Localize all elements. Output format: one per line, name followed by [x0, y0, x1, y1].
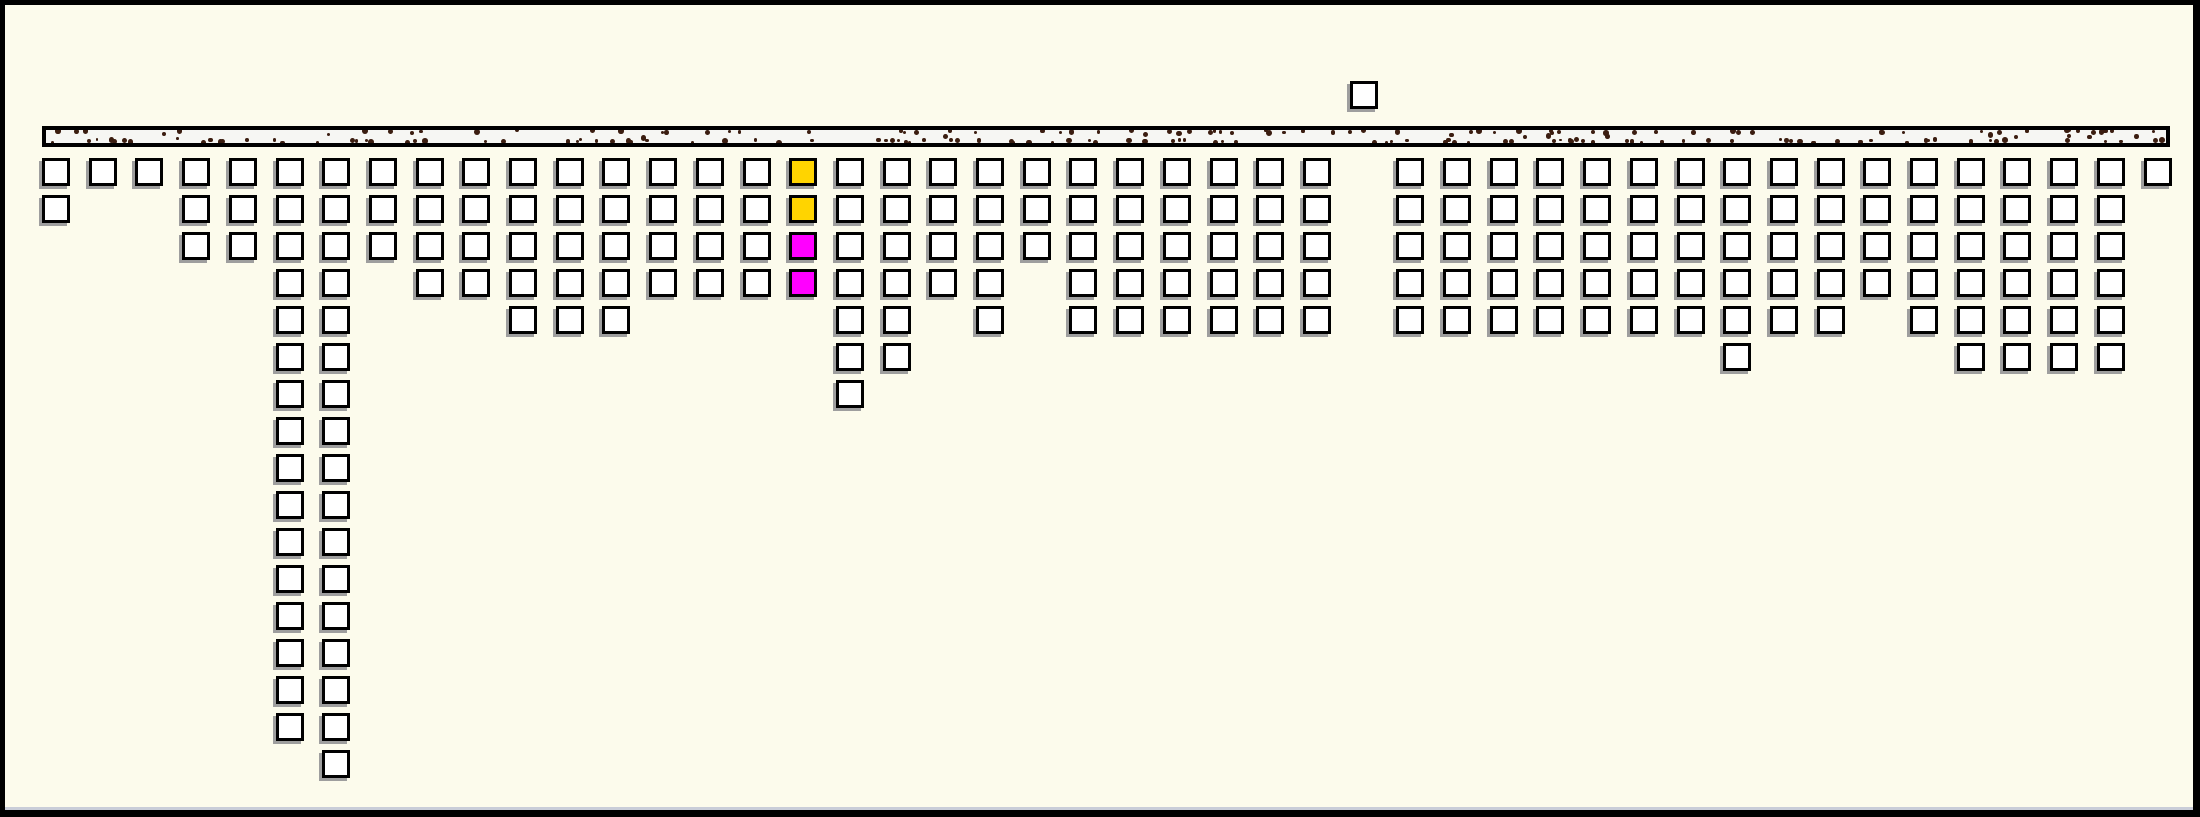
speckle-dot [1176, 131, 1182, 137]
speckle-dot [1143, 140, 1146, 143]
unit-square [556, 232, 584, 260]
unit-square [1583, 232, 1611, 260]
unit-square [322, 528, 350, 556]
unit-square [182, 158, 210, 186]
speckle-dot [1143, 132, 1148, 137]
speckle-dot [2119, 140, 2122, 143]
unit-square [1116, 269, 1144, 297]
speckle-dot [618, 128, 624, 134]
speckle-dot [974, 131, 977, 134]
speckle-dot [1171, 139, 1175, 143]
unit-square [883, 306, 911, 334]
unit-square [1957, 158, 1985, 186]
unit-square [322, 195, 350, 223]
speckle-dot [1213, 129, 1217, 133]
unit-square [276, 380, 304, 408]
speckle-dot [2025, 129, 2029, 133]
speckle-dot [1493, 131, 1496, 134]
speckle-dot [2153, 138, 2158, 143]
unit-square [743, 269, 771, 297]
unit-square [1023, 232, 1051, 260]
speckle-dot [890, 138, 895, 143]
speckle-dot [691, 141, 694, 144]
unit-square [322, 602, 350, 630]
unit-square [1490, 195, 1518, 223]
speckle-dot [1730, 128, 1736, 134]
speckle-dot [922, 138, 926, 142]
unit-square [229, 232, 257, 260]
unit-square [369, 158, 397, 186]
speckle-dot [83, 128, 88, 133]
speckle-dot [807, 130, 811, 134]
unit-square [1303, 158, 1331, 186]
unit-square [2050, 306, 2078, 334]
unit-square [649, 232, 677, 260]
unit-square [976, 232, 1004, 260]
speckle-dot [2091, 130, 2096, 135]
speckle-dot [2076, 129, 2080, 133]
speckle-dot [645, 139, 648, 142]
unit-square [696, 269, 724, 297]
unit-square [276, 676, 304, 704]
unit-square [1256, 158, 1284, 186]
unit-square [322, 565, 350, 593]
speckle-dot [2014, 135, 2018, 139]
unit-square [1163, 306, 1191, 334]
unit-square [1303, 232, 1331, 260]
speckle-dot [1835, 139, 1840, 144]
speckle-dot [1654, 130, 1658, 134]
speckle-dot [162, 132, 166, 136]
unit-square [1630, 269, 1658, 297]
unit-square [322, 158, 350, 186]
speckle-dot [1605, 134, 1610, 139]
unit-square [1723, 232, 1751, 260]
speckle-dot [128, 139, 133, 144]
speckle-dot [1625, 139, 1630, 144]
unit-square [1723, 269, 1751, 297]
unit-square [1817, 306, 1845, 334]
unit-square [1256, 306, 1284, 334]
unit-square [696, 158, 724, 186]
speckle-dot [1989, 139, 1992, 142]
unit-square [1910, 232, 1938, 260]
speckle-dot [1026, 140, 1031, 145]
unit-square [2144, 158, 2172, 186]
unit-square [1630, 158, 1658, 186]
unit-square [836, 158, 864, 186]
unit-square [2050, 158, 2078, 186]
unit-square [462, 158, 490, 186]
unit-square [276, 417, 304, 445]
unit-square [1210, 195, 1238, 223]
speckle-dot [1997, 130, 2002, 135]
speckle-dot [112, 139, 117, 144]
unit-square [2050, 269, 2078, 297]
unit-square [649, 195, 677, 223]
unit-square [1583, 195, 1611, 223]
unit-square [1396, 269, 1424, 297]
speckle-dot [1591, 140, 1595, 144]
speckle-dot [177, 128, 183, 134]
speckle-dot [1452, 140, 1457, 145]
speckle-dot [1546, 133, 1551, 138]
unit-square [649, 158, 677, 186]
speckle-dot [1040, 129, 1045, 134]
speckle-dot [1523, 135, 1527, 139]
unit-square [1069, 195, 1097, 223]
speckle-dot [2134, 134, 2139, 139]
unit-square [929, 269, 957, 297]
speckle-dot [1789, 139, 1793, 143]
unit-square [1210, 232, 1238, 260]
speckle-dot [1630, 139, 1634, 143]
figure-frame [0, 0, 2200, 817]
speckle-dot [1591, 130, 1596, 135]
speckle-dot [705, 130, 710, 135]
speckle-dot [2103, 130, 2106, 133]
unit-square [1677, 195, 1705, 223]
unit-square [509, 269, 537, 297]
speckle-dot [1213, 140, 1218, 145]
unit-square [1210, 306, 1238, 334]
unit-square [743, 195, 771, 223]
unit-square [1723, 158, 1751, 186]
speckle-dot [1446, 138, 1450, 142]
unit-square [1536, 158, 1564, 186]
unit-square [1770, 195, 1798, 223]
unit-square [322, 454, 350, 482]
unit-square [229, 158, 257, 186]
speckle-dot [903, 131, 906, 134]
unit-square [509, 306, 537, 334]
speckle-dot [908, 141, 911, 144]
unit-square [929, 232, 957, 260]
unit-square [1630, 232, 1658, 260]
speckle-dot [51, 141, 54, 144]
speckle-dot [1632, 130, 1637, 135]
unit-square [1677, 232, 1705, 260]
timeline-band [42, 126, 2170, 147]
speckle-dot [1980, 130, 1983, 133]
unit-square [322, 713, 350, 741]
speckle-dot [87, 139, 91, 143]
above-band-square [1350, 81, 1378, 109]
speckle-dot [280, 141, 284, 145]
unit-square [229, 195, 257, 223]
unit-square [276, 306, 304, 334]
speckle-dot [1219, 130, 1222, 133]
unit-square [276, 602, 304, 630]
unit-square [1069, 269, 1097, 297]
speckle-dot [1784, 138, 1789, 143]
unit-square [1069, 158, 1097, 186]
unit-square [322, 491, 350, 519]
speckle-dot [208, 138, 213, 143]
unit-square [322, 232, 350, 260]
unit-square [1256, 269, 1284, 297]
unit-square [1863, 158, 1891, 186]
speckle-dot [1372, 140, 1377, 145]
unit-square [1770, 232, 1798, 260]
speckle-dot [474, 129, 480, 135]
unit-square [322, 417, 350, 445]
speckle-dot [1691, 130, 1696, 135]
unit-square [1910, 306, 1938, 334]
unit-square [1536, 195, 1564, 223]
speckle-dot [664, 130, 668, 134]
speckle-dot [1552, 139, 1556, 143]
speckle-dot [1682, 139, 1685, 142]
speckle-dot [1230, 131, 1234, 135]
unit-square [1443, 306, 1471, 334]
unit-square [1677, 269, 1705, 297]
unit-square [743, 158, 771, 186]
speckle-dot [1574, 137, 1579, 142]
unit-square [2050, 195, 2078, 223]
speckle-dot [419, 130, 422, 133]
unit-square [276, 713, 304, 741]
unit-square [1863, 195, 1891, 223]
unit-square [1536, 232, 1564, 260]
speckle-dot [327, 133, 330, 136]
unit-square [1723, 343, 1751, 371]
speckle-dot [1476, 128, 1482, 134]
speckle-dots-layer [46, 130, 2166, 143]
speckle-dot [977, 138, 981, 142]
unit-square [929, 195, 957, 223]
unit-square [276, 454, 304, 482]
speckle-dot [2110, 129, 2114, 133]
unit-square [1443, 269, 1471, 297]
unit-square [369, 195, 397, 223]
speckle-dot [1405, 139, 1409, 143]
speckle-dot [1933, 137, 1938, 142]
speckle-dot [1779, 138, 1782, 141]
speckle-dot [273, 138, 277, 142]
unit-square [276, 343, 304, 371]
unit-square [1817, 158, 1845, 186]
unit-square [1116, 232, 1144, 260]
unit-square [276, 269, 304, 297]
unit-square [1303, 269, 1331, 297]
speckle-dot [1503, 139, 1508, 144]
speckle-dot [316, 141, 319, 144]
speckle-dot [1059, 131, 1062, 134]
unit-square [2003, 269, 2031, 297]
speckle-dot [955, 138, 960, 143]
speckle-dot [1988, 132, 1993, 137]
unit-square [1069, 232, 1097, 260]
speckle-dot [1581, 139, 1585, 143]
unit-square [322, 306, 350, 334]
unit-square [1210, 269, 1238, 297]
unit-square [976, 306, 1004, 334]
speckle-dot [245, 138, 249, 142]
highlighted-unit-square [789, 158, 817, 186]
unit-square [1957, 269, 1985, 297]
unit-square [602, 158, 630, 186]
unit-square [1957, 195, 1985, 223]
speckle-dot [1469, 130, 1473, 134]
unit-square [462, 269, 490, 297]
unit-square [2097, 232, 2125, 260]
unit-square [2097, 343, 2125, 371]
unit-square [462, 232, 490, 260]
speckle-dot [1559, 139, 1562, 142]
highlighted-unit-square [789, 195, 817, 223]
unit-square [276, 158, 304, 186]
unit-square [182, 195, 210, 223]
unit-square [1770, 306, 1798, 334]
speckle-dot [1449, 133, 1453, 137]
unit-square [1490, 269, 1518, 297]
speckle-dot [1858, 140, 1863, 145]
speckle-dot [1178, 138, 1182, 142]
speckle-dot [610, 139, 615, 144]
speckle-dot [1331, 130, 1336, 135]
unit-square [1396, 306, 1424, 334]
unit-square [1396, 232, 1424, 260]
unit-square [276, 528, 304, 556]
unit-square [602, 195, 630, 223]
unit-square [1256, 232, 1284, 260]
speckle-dot [2064, 127, 2069, 132]
unit-square [276, 565, 304, 593]
unit-square [743, 232, 771, 260]
unit-square [1630, 195, 1658, 223]
speckle-dot [1509, 139, 1514, 144]
unit-square [1163, 232, 1191, 260]
speckle-dot [55, 128, 60, 133]
unit-square [696, 232, 724, 260]
unit-square [556, 195, 584, 223]
unit-square [2050, 232, 2078, 260]
unit-square [836, 195, 864, 223]
unit-square [2003, 158, 2031, 186]
speckle-dot [1905, 141, 1909, 145]
unit-square [1023, 158, 1051, 186]
speckle-dot [422, 138, 428, 144]
unit-square [509, 232, 537, 260]
unit-square [1396, 195, 1424, 223]
speckle-dot [201, 140, 206, 145]
unit-square [883, 343, 911, 371]
unit-square [1863, 269, 1891, 297]
speckle-dot [96, 138, 99, 141]
speckle-dot [738, 130, 741, 133]
unit-square [1910, 158, 1938, 186]
highlighted-unit-square [789, 269, 817, 297]
speckle-dot [1234, 140, 1238, 144]
speckle-dot [2002, 137, 2008, 143]
unit-square [1770, 269, 1798, 297]
speckle-dot [1126, 138, 1131, 143]
unit-square [2003, 343, 2031, 371]
unit-square [976, 195, 1004, 223]
unit-square [1770, 158, 1798, 186]
speckle-dot [1009, 139, 1014, 144]
unit-square [1443, 195, 1471, 223]
speckle-dot [2067, 134, 2071, 138]
speckle-dot [1093, 140, 1098, 145]
unit-square [556, 306, 584, 334]
unit-square [509, 195, 537, 223]
speckle-dot [1395, 129, 1400, 134]
speckle-dot [776, 140, 782, 146]
speckle-dot [368, 139, 374, 145]
speckle-dot [1051, 141, 1054, 144]
speckle-dot [566, 139, 571, 144]
speckle-dot [754, 138, 757, 141]
unit-square [696, 195, 724, 223]
unit-square [2050, 343, 2078, 371]
unit-square [1490, 306, 1518, 334]
unit-square [42, 158, 70, 186]
unit-square [836, 306, 864, 334]
unit-square [369, 232, 397, 260]
unit-square [1817, 269, 1845, 297]
unit-square [1163, 158, 1191, 186]
speckle-dot [1282, 131, 1285, 134]
speckle-dot [1187, 129, 1192, 134]
speckle-dot [1969, 139, 1973, 143]
unit-square [182, 232, 210, 260]
speckle-dot [2152, 130, 2155, 133]
speckle-dot [579, 138, 582, 141]
unit-square [2097, 269, 2125, 297]
unit-square [602, 232, 630, 260]
unit-square [836, 232, 864, 260]
speckle-dot [595, 139, 599, 143]
unit-square [1723, 306, 1751, 334]
speckle-dot [728, 130, 731, 133]
unit-square [322, 380, 350, 408]
speckle-dot [1097, 130, 1101, 134]
unit-square [1583, 306, 1611, 334]
unit-square [322, 639, 350, 667]
speckle-dot [1183, 138, 1187, 142]
unit-square [1116, 195, 1144, 223]
speckle-dot [355, 139, 358, 142]
speckle-dot [2065, 138, 2070, 143]
speckle-dot [220, 139, 225, 144]
speckle-dot [1879, 130, 1883, 134]
unit-square [883, 232, 911, 260]
speckle-dot [1516, 128, 1522, 134]
speckle-dot [897, 139, 900, 142]
unit-square [883, 195, 911, 223]
speckle-dot [74, 129, 79, 134]
speckle-dot [1902, 131, 1905, 134]
speckle-dot [1736, 130, 1741, 135]
unit-square [602, 306, 630, 334]
unit-square [1536, 306, 1564, 334]
unit-square [89, 158, 117, 186]
unit-square [929, 158, 957, 186]
speckle-dot [1385, 141, 1388, 144]
speckle-dot [1088, 139, 1091, 142]
speckle-dot [949, 138, 953, 142]
unit-square [1910, 269, 1938, 297]
speckle-dot [899, 129, 903, 133]
unit-square [1210, 158, 1238, 186]
unit-square [2003, 232, 2031, 260]
speckle-dot [1301, 129, 1305, 133]
speckle-dot [1568, 138, 1572, 142]
unit-square [1443, 158, 1471, 186]
speckle-dot [1361, 128, 1366, 133]
